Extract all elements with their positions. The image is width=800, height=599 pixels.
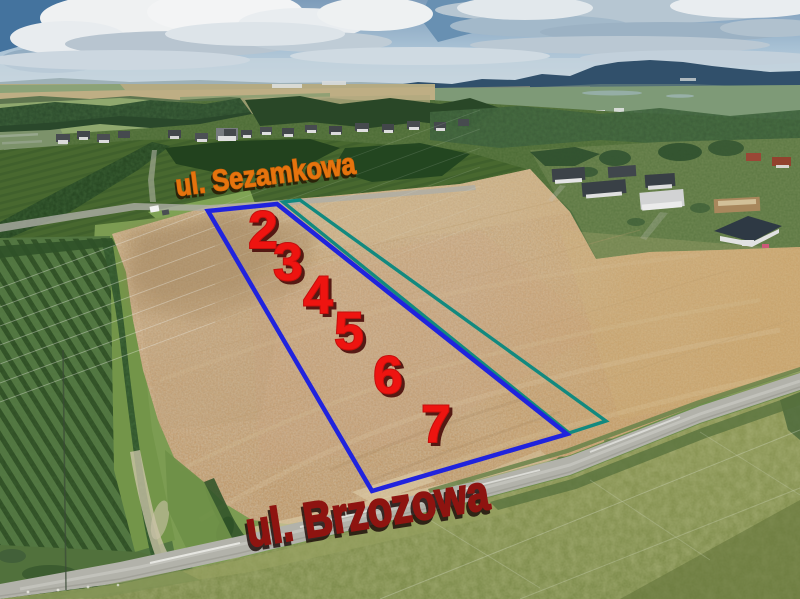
svg-text:5: 5 [334, 302, 363, 361]
svg-text:4: 4 [303, 266, 333, 325]
svg-text:7: 7 [421, 395, 450, 454]
svg-text:3: 3 [273, 233, 302, 292]
svg-text:6: 6 [373, 346, 402, 405]
